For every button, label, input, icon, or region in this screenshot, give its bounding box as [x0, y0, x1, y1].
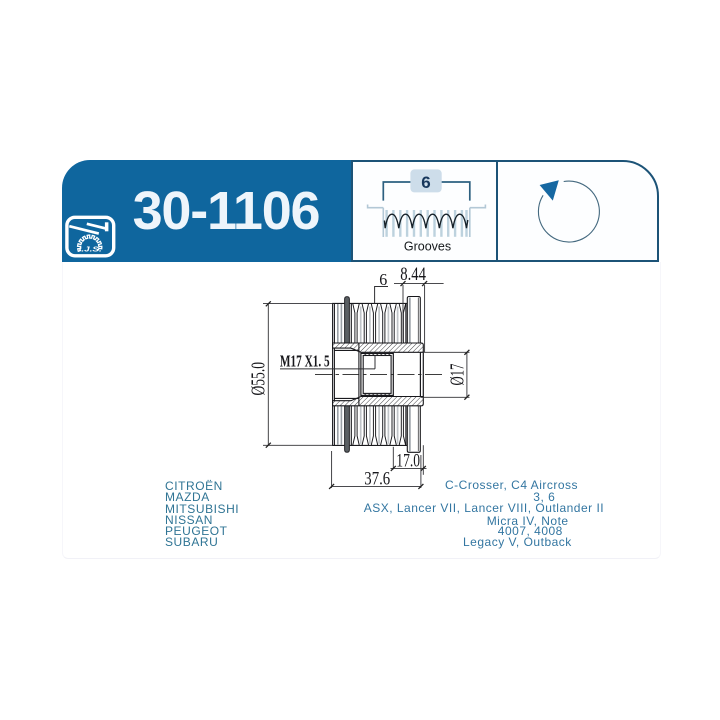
svg-text:17.0: 17.0 — [396, 450, 420, 471]
svg-text:Ø55.0: Ø55.0 — [248, 362, 270, 396]
svg-text:M17 X1. 5: M17 X1. 5 — [280, 352, 330, 371]
svg-text:6: 6 — [379, 270, 387, 289]
svg-text:8.44: 8.44 — [400, 264, 426, 285]
svg-text:Ø17: Ø17 — [447, 364, 469, 386]
svg-text:37.6: 37.6 — [364, 468, 390, 489]
